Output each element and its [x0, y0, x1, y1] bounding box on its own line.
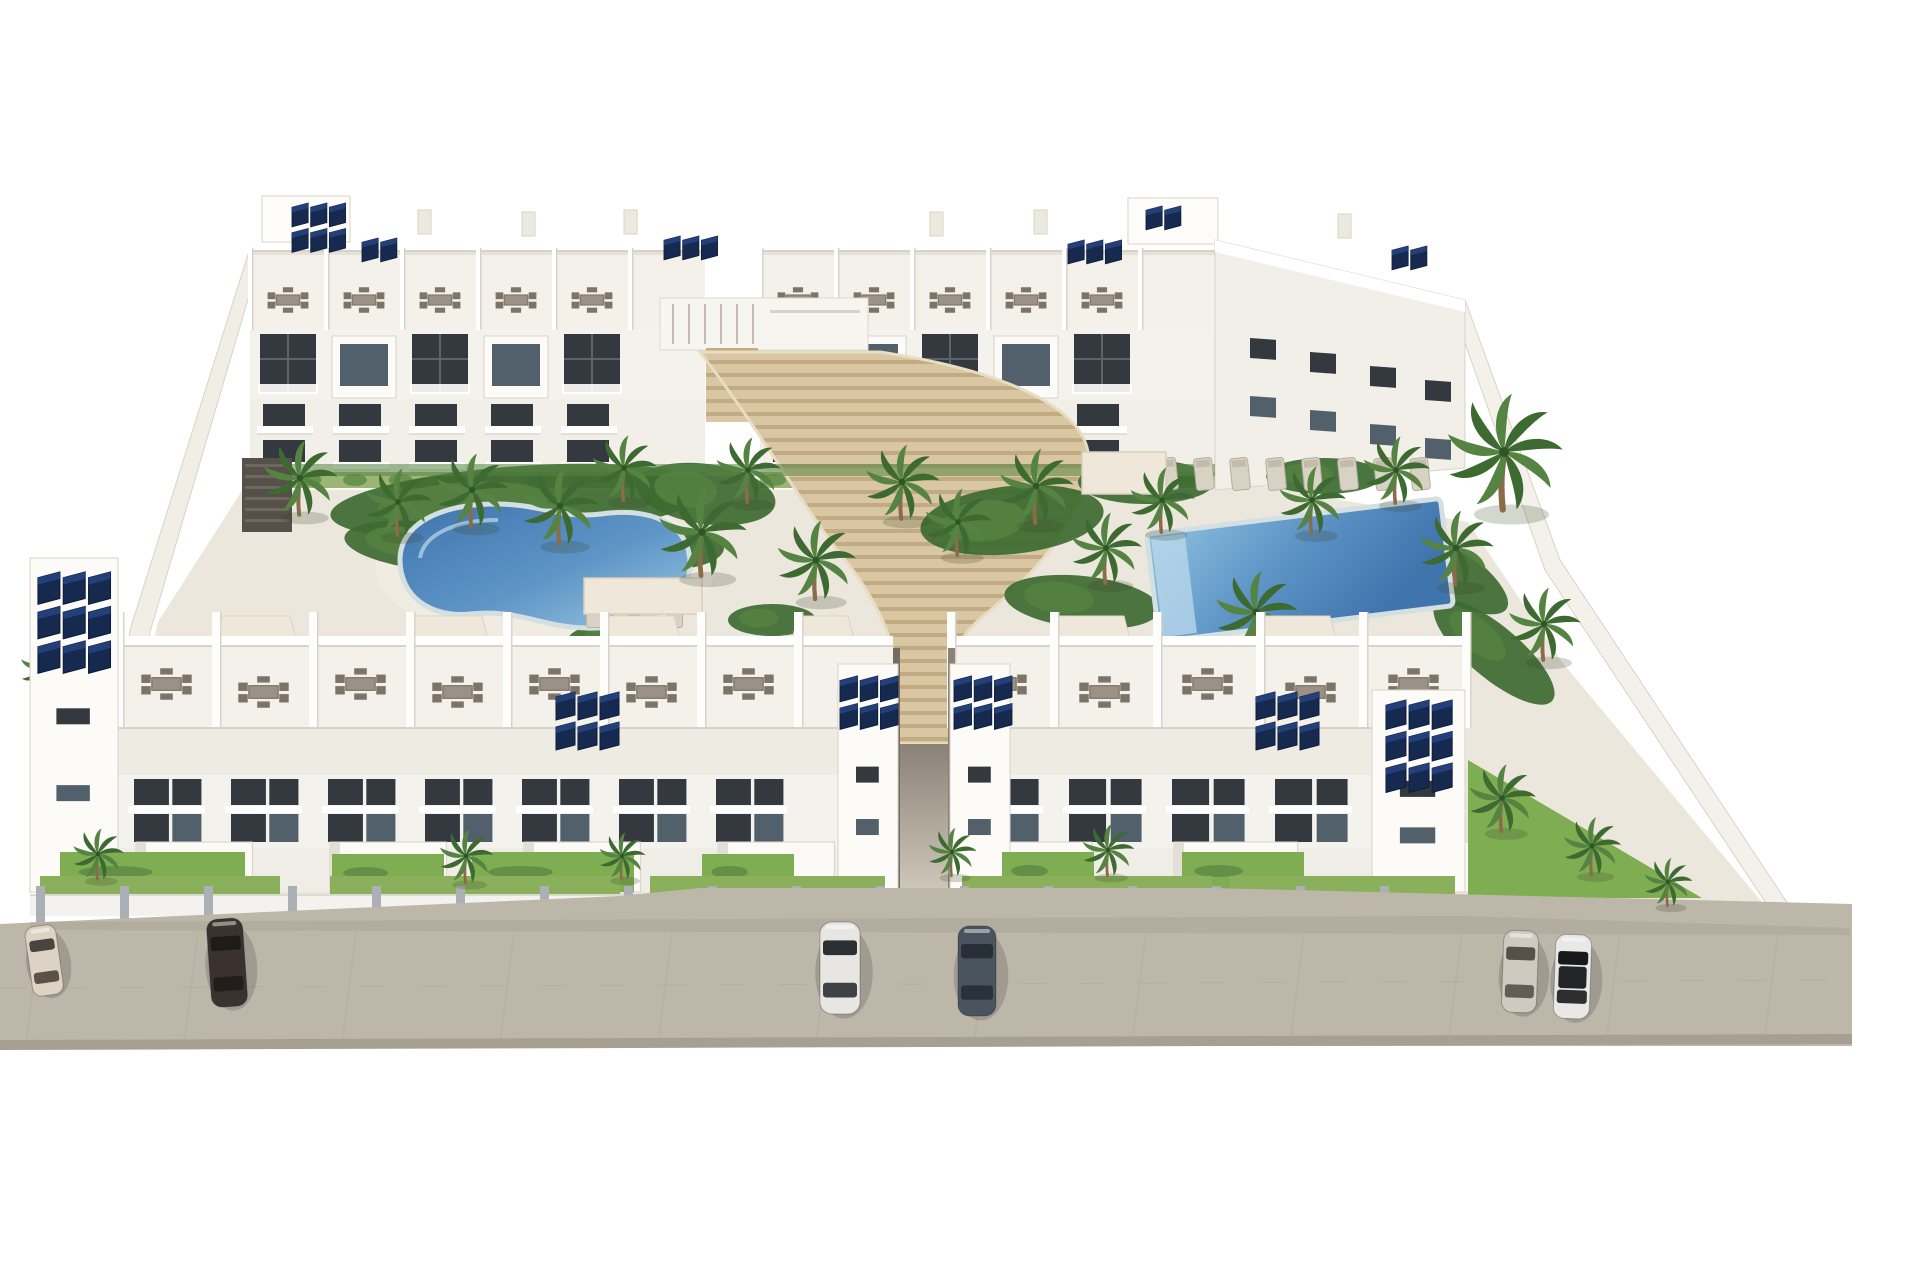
sun-lounger [1265, 457, 1286, 491]
palm-shadow [1145, 529, 1187, 540]
residential-complex-render [0, 0, 1920, 1280]
balcony-slab [516, 806, 593, 813]
terrace-fin-wall [794, 612, 803, 728]
balcony-slab [419, 806, 496, 813]
facade-opening [425, 814, 460, 842]
terrace-fin-wall [309, 612, 318, 728]
chimney [624, 210, 637, 234]
facade-opening [1172, 814, 1209, 842]
facade-opening [754, 779, 783, 805]
solar-panel-array [664, 236, 718, 260]
facade-opening [657, 814, 686, 842]
balcony-slab [257, 426, 313, 433]
apartment-block-front [115, 612, 893, 892]
balcony-slab [128, 806, 205, 813]
tower-window [1400, 827, 1435, 843]
facade-opening [1317, 779, 1348, 805]
palm-shadow [453, 523, 500, 535]
facade-opening [1172, 779, 1209, 805]
facade-opening [560, 779, 589, 805]
balcony-slab [1166, 806, 1249, 813]
balcony-opening [567, 404, 609, 427]
car-rear-window [961, 985, 993, 999]
balcony-opening [491, 404, 533, 427]
chimney [1338, 214, 1351, 238]
balcony-opening [567, 440, 609, 463]
balcony-slab [561, 426, 617, 433]
palm-shadow [1656, 904, 1687, 912]
wing-window [1250, 338, 1276, 360]
palm-shadow [381, 532, 424, 544]
facade-opening [1069, 814, 1106, 842]
facade-opening [425, 779, 460, 805]
terrace-fin-wall [503, 612, 512, 728]
penthouse-window [1002, 344, 1050, 386]
wing-window [1425, 438, 1451, 460]
pergola-slat [672, 304, 674, 344]
palm-shadow [610, 877, 640, 885]
solar-panel-array [1386, 700, 1452, 792]
terrace-fin-wall [1359, 612, 1368, 728]
chimney [930, 212, 943, 236]
facade-opening [716, 814, 751, 842]
terrace-fin-wall [1050, 612, 1059, 728]
facade-opening [1275, 779, 1312, 805]
car-rear-window [823, 983, 857, 998]
car-rear-window [1557, 990, 1587, 1004]
tower-window [968, 819, 991, 835]
terrace-fin-wall [212, 612, 221, 728]
palm-shadow [1525, 657, 1572, 669]
palm-shadow [1088, 580, 1134, 592]
facade-opening [1214, 779, 1245, 805]
wing-window [1370, 366, 1396, 388]
wing-window [1425, 380, 1451, 402]
balcony-slab [485, 426, 541, 433]
facade-opening [366, 779, 395, 805]
fence-pillar [36, 886, 45, 922]
car-roof [1558, 966, 1587, 989]
chimney [418, 210, 431, 234]
palm-shadow [607, 497, 649, 508]
pergola-slat [688, 304, 690, 344]
balcony-slab [333, 426, 389, 433]
facade-opening [366, 814, 395, 842]
car-windshield [1558, 951, 1588, 965]
facade-opening [1008, 814, 1039, 842]
sun-lounger [1337, 457, 1358, 491]
palm-shadow [1437, 582, 1485, 595]
penthouse-window [492, 344, 540, 386]
wing-window [1310, 352, 1336, 374]
car-roof [32, 951, 57, 972]
facade-opening [1214, 814, 1245, 842]
wing-window [1310, 410, 1336, 432]
car-roof [1506, 961, 1534, 983]
car-roof [962, 960, 992, 983]
facade-opening [1008, 779, 1039, 805]
facade-opening [1275, 814, 1312, 842]
balcony-railing [562, 384, 622, 394]
fence-pillar [120, 886, 129, 922]
solar-panel-array [1392, 246, 1427, 270]
facade-opening [1111, 779, 1142, 805]
palm-shadow [1295, 530, 1338, 542]
balcony-railing [1072, 384, 1132, 394]
chimney [522, 212, 535, 236]
balcony-opening [339, 440, 381, 463]
palm-shadow [1379, 500, 1422, 512]
facade-opening [1069, 779, 1106, 805]
palm-shadow [1485, 828, 1528, 840]
sun-lounger [1229, 457, 1250, 491]
balcony-opening [415, 404, 457, 427]
palm-shadow [1577, 872, 1614, 882]
pergola-slat [704, 304, 706, 344]
tower-window [56, 785, 89, 801]
palm-shadow [452, 880, 487, 889]
link-building [660, 298, 868, 350]
palm-shadow [1474, 505, 1549, 525]
car-windshield [823, 940, 857, 955]
pergola-slat [736, 304, 738, 344]
balcony-railing [410, 384, 470, 394]
right-rear-wing [1215, 240, 1465, 490]
palm-shadow [540, 540, 589, 553]
palm-shadow [883, 516, 931, 529]
sun-lounger [1193, 457, 1214, 491]
chimney [1034, 210, 1047, 234]
facade-opening [522, 779, 557, 805]
car-roof [212, 951, 242, 976]
palm-shadow [940, 874, 971, 882]
wing-window [1370, 424, 1396, 446]
tower-window [968, 767, 991, 783]
tower-window [56, 708, 89, 724]
facade-opening [619, 814, 654, 842]
facade-opening [269, 779, 298, 805]
pergola-slat [720, 304, 722, 344]
facade-opening [328, 814, 363, 842]
terrace-fin-wall [697, 612, 706, 728]
tower-window [856, 819, 879, 835]
facade-opening [328, 779, 363, 805]
palm-shadow [281, 512, 329, 525]
fence-grass-strip [40, 876, 280, 894]
car-rear-window [1505, 984, 1534, 998]
balcony-slab [710, 806, 787, 813]
tower-window [856, 767, 879, 783]
penthouse-window [340, 344, 388, 386]
balcony-opening [415, 440, 457, 463]
facade-opening [716, 779, 751, 805]
solar-panel-array [1068, 240, 1122, 264]
facade-opening [619, 779, 654, 805]
palm-shadow [85, 877, 118, 886]
front-apartment-row [115, 612, 1504, 892]
terrace-fin-wall [406, 612, 415, 728]
facade-opening [172, 779, 201, 805]
facade-opening [231, 779, 266, 805]
render-canvas [0, 0, 1920, 1280]
facade-opening [172, 814, 201, 842]
facade-opening [560, 814, 589, 842]
palm-shadow [679, 572, 736, 587]
solar-panel-array [38, 572, 110, 673]
car-windshield [1506, 946, 1535, 960]
car-windshield [210, 935, 241, 951]
car-rear-window [213, 976, 244, 992]
car-roof [824, 957, 856, 981]
palm-shadow [941, 552, 984, 564]
wing-window [1250, 396, 1276, 418]
balcony-slab [225, 806, 302, 813]
facade-opening [231, 814, 266, 842]
facade-opening [522, 814, 557, 842]
facade-opening [463, 779, 492, 805]
balcony-slab [1063, 806, 1146, 813]
balcony-opening [491, 440, 533, 463]
balcony-slab [322, 806, 399, 813]
palm-shadow [1017, 520, 1065, 533]
balcony-slab [1269, 806, 1352, 813]
facade-opening [134, 814, 169, 842]
balcony-slab [613, 806, 690, 813]
balcony-opening [339, 404, 381, 427]
facade-opening [269, 814, 298, 842]
balcony-opening [1077, 404, 1119, 427]
balcony-opening [263, 404, 305, 427]
palm-shadow [796, 596, 847, 610]
terrace-fin-wall [1153, 612, 1162, 728]
palm-shadow [731, 499, 773, 510]
facade-opening [134, 779, 169, 805]
facade-opening [657, 779, 686, 805]
facade-opening [1317, 814, 1348, 842]
pergola-slat [752, 304, 754, 344]
car-windshield [961, 944, 993, 958]
palm-shadow [1095, 874, 1129, 883]
balcony-railing [258, 384, 318, 394]
balcony-slab [409, 426, 465, 433]
facade-opening [754, 814, 783, 842]
